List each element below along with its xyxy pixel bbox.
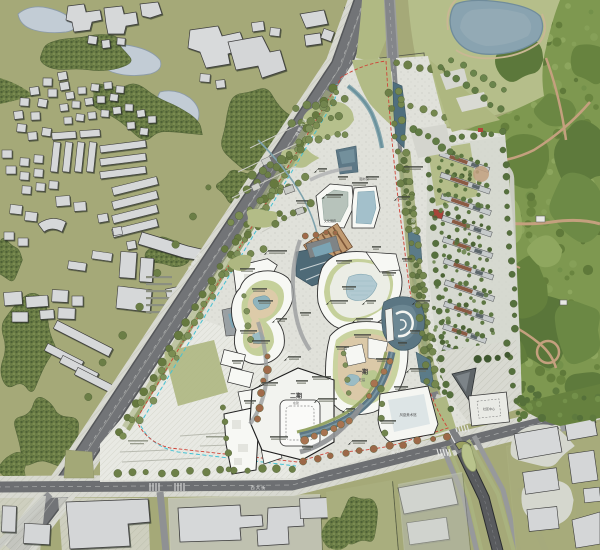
svg-text:文化展廊: 文化展廊 bbox=[324, 218, 336, 223]
svg-text:一期: 一期 bbox=[356, 368, 368, 376]
svg-text:西 大 街: 西 大 街 bbox=[251, 484, 266, 491]
svg-text:在建: 在建 bbox=[359, 377, 366, 382]
svg-text:凤凰美术馆: 凤凰美术馆 bbox=[400, 412, 418, 417]
svg-text:社区中心: 社区中心 bbox=[483, 406, 495, 411]
svg-text:在建: 在建 bbox=[293, 400, 299, 405]
svg-text:二期: 二期 bbox=[290, 392, 302, 400]
